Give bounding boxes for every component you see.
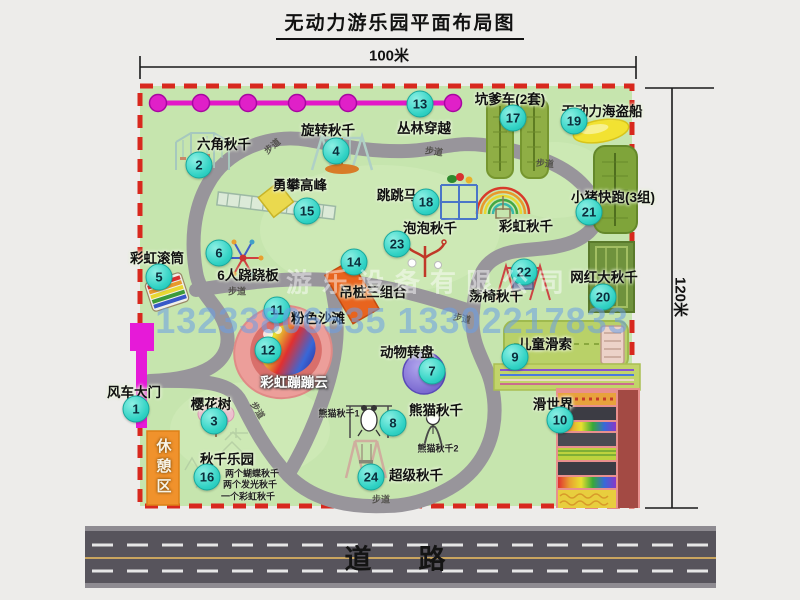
attraction-badge-21: 21 — [576, 199, 603, 226]
attraction-badge-6: 6 — [206, 240, 233, 267]
attraction-label-6: 6人跷跷板 — [217, 264, 279, 284]
walkway-label: 步道 — [372, 493, 390, 506]
attraction-badge-10: 10 — [547, 407, 574, 434]
watermark-company: 游乐设备有限公司 — [286, 263, 574, 300]
rest-area-label: 休憩区 — [153, 438, 174, 498]
walkway-label: 步道 — [535, 156, 554, 171]
attraction-badge-9: 9 — [502, 344, 529, 371]
attraction-label-4: 旋转秋千 — [301, 119, 355, 139]
attraction-badge-3: 3 — [201, 408, 228, 435]
attraction-badge-2: 2 — [186, 152, 213, 179]
height-dimension-label: 120米 — [671, 277, 692, 317]
attraction-label-18: 跳跳马 — [377, 184, 418, 204]
attraction-label-2: 六角秋千 — [197, 133, 251, 153]
attraction-label-15: 勇攀高峰 — [273, 174, 327, 194]
attraction-badge-13: 13 — [407, 91, 434, 118]
attraction-badge-18: 18 — [413, 189, 440, 216]
attraction-badge-4: 4 — [323, 138, 350, 165]
attraction-badge-23: 23 — [384, 231, 411, 258]
walkway-label: 步道 — [228, 285, 246, 298]
attraction-badge-16: 16 — [194, 464, 221, 491]
attraction-badge-19: 19 — [561, 108, 588, 135]
attraction-badge-7: 7 — [419, 358, 446, 385]
attraction-sublabel-8-1: 熊猫秋千1 — [318, 407, 359, 420]
attraction-label-彩虹秋千: 彩虹秋千 — [499, 215, 553, 235]
attraction-badge-5: 5 — [146, 264, 173, 291]
width-dimension-label: 100米 — [369, 45, 409, 66]
attraction-badge-8: 8 — [380, 410, 407, 437]
attraction-label-8: 熊猫秋千 — [409, 399, 463, 419]
attraction-badge-1: 1 — [123, 396, 150, 423]
attraction-label-23: 泡泡秋千 — [403, 217, 457, 237]
attraction-label-12: 彩虹蹦蹦云 — [260, 371, 328, 391]
attraction-sublabel-16-3: 一个彩虹秋千 — [221, 490, 275, 503]
attraction-sublabel-8-2: 熊猫秋千2 — [417, 442, 458, 455]
attraction-label-13: 丛林穿越 — [397, 117, 451, 137]
road-label: 道 路 — [345, 538, 456, 577]
watermark-phone: 13233806535 13302217833 — [155, 300, 628, 342]
attraction-badge-24: 24 — [358, 464, 385, 491]
attraction-badge-15: 15 — [294, 198, 321, 225]
walkway-label: 步道 — [424, 143, 444, 158]
attraction-badge-17: 17 — [500, 105, 527, 132]
attraction-label-24: 超级秋千 — [389, 464, 443, 484]
park-plan: 无动力游乐园平面布局图 — [0, 0, 800, 600]
